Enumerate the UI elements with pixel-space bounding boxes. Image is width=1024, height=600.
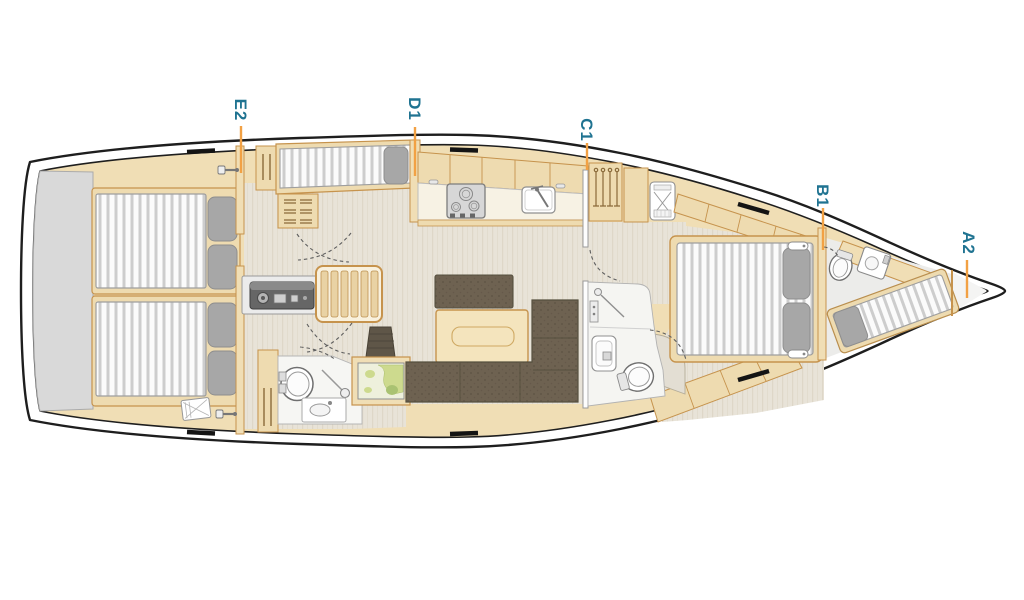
- aft-cabin-starboard: [92, 296, 240, 421]
- pillow-icon: [783, 248, 810, 299]
- pillow-icon: [783, 303, 810, 353]
- bulkheads-c1: [583, 170, 588, 408]
- forward-cabin: [670, 228, 826, 362]
- zone-label-d1: D1: [398, 92, 432, 126]
- chart-map-icon: [358, 363, 404, 399]
- pillow-icon: [208, 245, 237, 289]
- pillow-icon: [208, 351, 237, 395]
- zone-label-a2: A2: [952, 226, 986, 260]
- zone-label-e2: E2: [224, 93, 258, 127]
- latch-icon: [429, 180, 438, 184]
- companionway-steps-icon: [316, 266, 382, 322]
- deck-plan-drawing: [0, 0, 1024, 600]
- pillow-icon: [208, 303, 237, 347]
- hanging-locker-icon: [589, 163, 622, 221]
- pillow-icon: [208, 197, 237, 241]
- zone-label-b1: B1: [806, 179, 840, 213]
- double-berth-icon: [96, 302, 206, 396]
- pillow-icon: [384, 147, 408, 184]
- vanity-chair-icon: [650, 182, 675, 220]
- bench-icon: [435, 275, 513, 308]
- double-berth-icon: [96, 194, 206, 288]
- stove-icon: [447, 184, 485, 218]
- yacht-layout-plan: E2 D1 C1 B1 A2: [0, 0, 1024, 600]
- aft-cabin-port: [92, 188, 240, 294]
- engine-icon: [242, 276, 318, 314]
- aft-head: [278, 356, 362, 424]
- washbasin-icon: [592, 336, 616, 371]
- vanity-seat-icon: [181, 397, 211, 420]
- sink-icon: [522, 186, 555, 213]
- latch-icon: [556, 184, 565, 188]
- zone-label-c1: C1: [570, 113, 604, 147]
- nav-station: [352, 357, 410, 405]
- swim-platform: [33, 171, 93, 411]
- washbasin-icon: [302, 398, 346, 422]
- stool-icon: [366, 327, 395, 357]
- salon-table: [436, 310, 528, 363]
